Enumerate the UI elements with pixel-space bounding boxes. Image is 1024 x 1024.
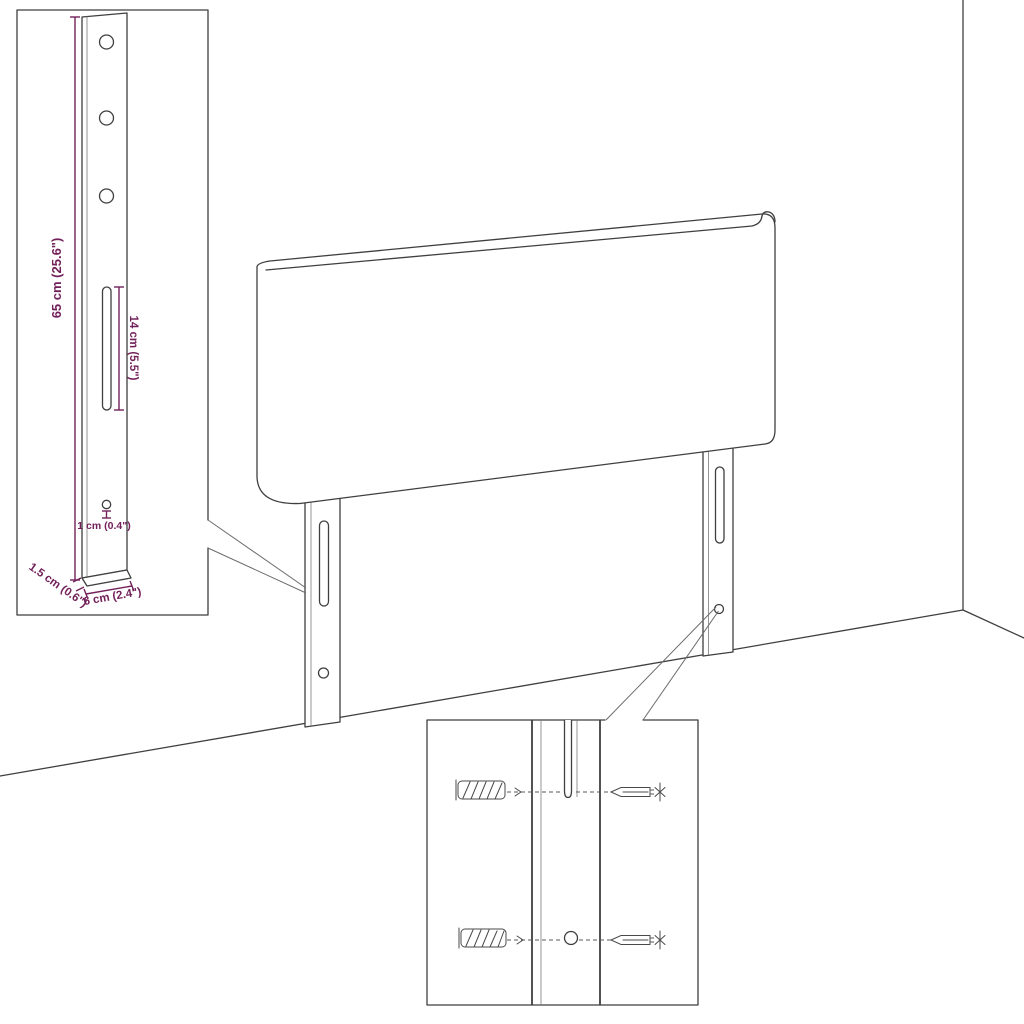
right-leg-slot — [716, 467, 725, 543]
headboard-dimension-diagram: 65 cm (25.6") 14 cm (5.5") 1 cm (0.4") 1… — [0, 0, 1024, 1024]
hole-callout-line-right — [643, 611, 719, 720]
bracket-hole-top — [100, 35, 114, 49]
height-dimension-label: 65 cm (25.6") — [49, 238, 64, 319]
left-leg — [305, 491, 340, 727]
right-leg-hole — [715, 605, 724, 614]
leg-callout-line-lower — [208, 548, 306, 593]
wall-plug-top-icon — [456, 780, 505, 800]
height-dimension: 65 cm (25.6") — [49, 17, 80, 580]
panel-face — [257, 214, 775, 504]
slot-length-dimension-label: 14 cm (5.5") — [127, 316, 139, 381]
floor-line-right — [963, 610, 1024, 638]
left-leg-hole — [319, 668, 329, 678]
hole-callout-line-left — [606, 607, 716, 720]
bracket-hole-bottom — [100, 189, 114, 203]
screw-bottom-icon — [611, 931, 665, 949]
right-leg — [703, 440, 733, 656]
wall-plug-bottom-icon — [459, 928, 506, 948]
thickness-dimension: 1.5 cm (0.6") — [26, 561, 89, 610]
strip-hole — [565, 932, 578, 945]
hole-dimension-label: 1 cm (0.4") — [77, 520, 130, 532]
bracket-hole-middle — [100, 111, 114, 125]
alignment-dashes — [507, 788, 611, 944]
floor-line-left — [0, 610, 963, 776]
bracket-small-hole — [102, 500, 110, 508]
left-leg-slot — [320, 521, 329, 606]
screw-top-icon — [611, 783, 665, 801]
bracket-slot — [103, 287, 112, 410]
mounting-detail-inset — [427, 720, 698, 1005]
callout-lines — [208, 520, 719, 720]
mounting-detail-inset-border — [427, 720, 698, 1005]
leg-detail-inset: 65 cm (25.6") 14 cm (5.5") 1 cm (0.4") 1… — [17, 10, 208, 615]
strip-slot — [565, 720, 572, 798]
diagram-canvas: 65 cm (25.6") 14 cm (5.5") 1 cm (0.4") 1… — [0, 0, 1024, 1024]
thickness-dimension-label: 1.5 cm (0.6") — [26, 561, 89, 610]
headboard-panel — [257, 212, 775, 504]
leg-callout-line-upper — [208, 520, 306, 588]
